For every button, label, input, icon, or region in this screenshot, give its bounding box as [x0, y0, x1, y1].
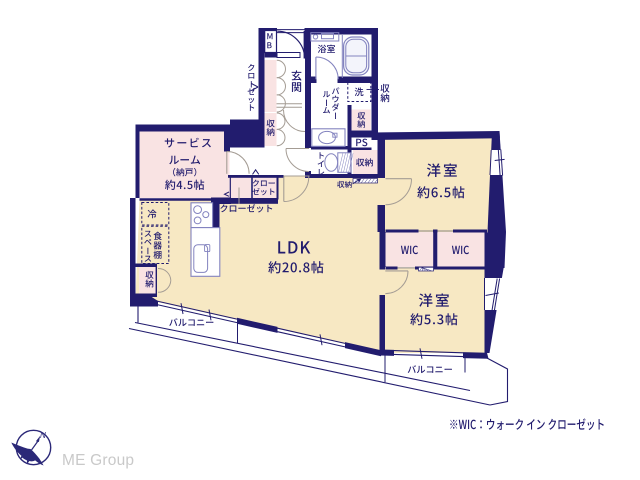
svg-text:ME Group: ME Group	[62, 452, 134, 469]
svg-text:N: N	[40, 431, 46, 440]
